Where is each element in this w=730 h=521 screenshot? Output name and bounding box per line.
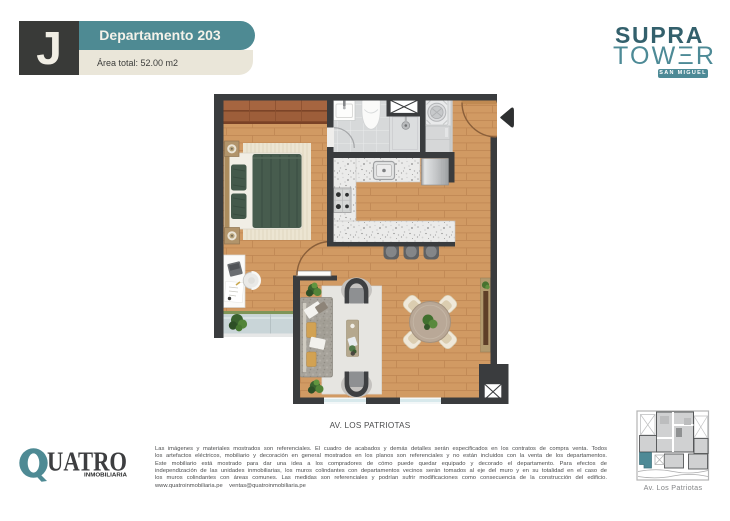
svg-text:INMOBILIARIA: INMOBILIARIA [84, 473, 127, 479]
